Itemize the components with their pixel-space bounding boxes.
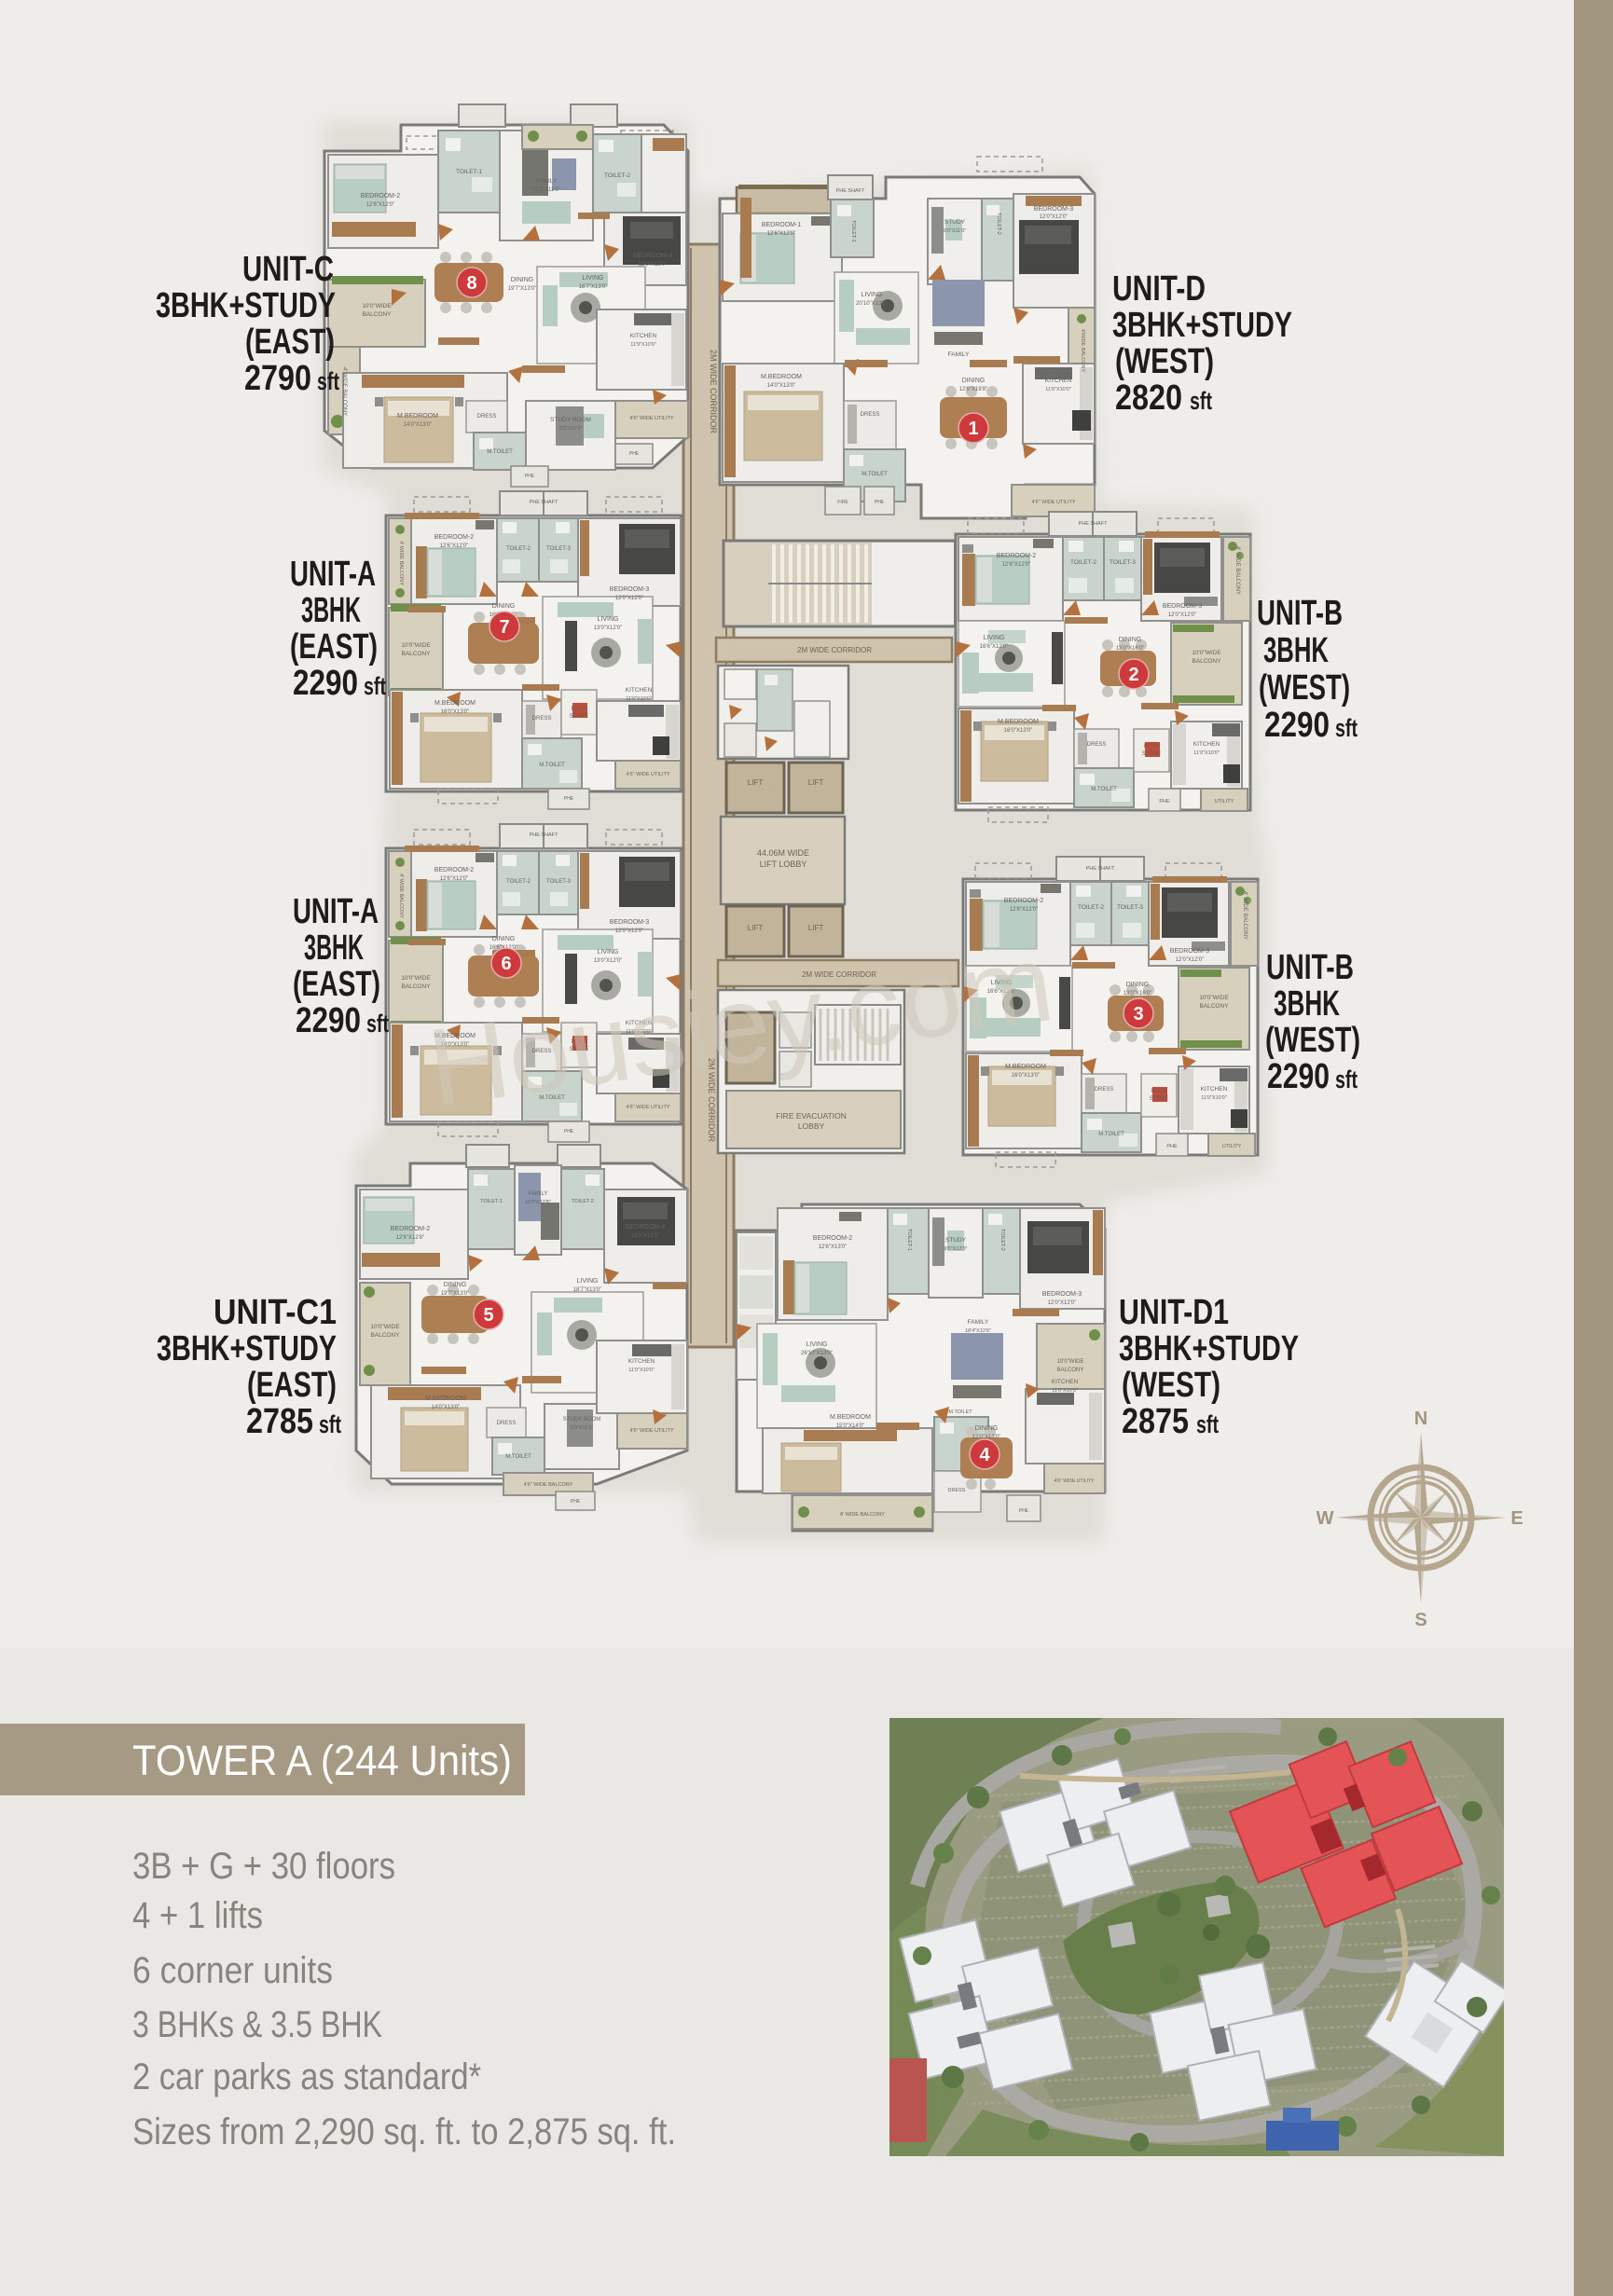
svg-text:1: 1 (968, 419, 978, 439)
svg-text:(EAST): (EAST) (293, 965, 380, 1004)
svg-text:3BHK+STUDY: 3BHK+STUDY (156, 286, 336, 325)
svg-text:LIFT: LIFT (748, 778, 764, 787)
svg-text:(EAST): (EAST) (290, 627, 378, 667)
svg-text:7: 7 (499, 617, 509, 638)
svg-text:2785: 2785 (246, 1402, 313, 1441)
svg-text:LIFT LOBBY: LIFT LOBBY (760, 859, 807, 869)
svg-text:4: 4 (979, 1445, 990, 1465)
svg-text:sft: sft (364, 672, 386, 700)
svg-text:UNIT-C: UNIT-C (242, 250, 334, 289)
svg-text:3BHK+STUDY: 3BHK+STUDY (1119, 1329, 1299, 1368)
svg-text:2790: 2790 (244, 359, 311, 398)
svg-text:2 car parks as standard*: 2 car parks as standard* (132, 2056, 481, 2097)
svg-text:LOBBY: LOBBY (798, 1121, 825, 1131)
svg-text:UNIT-B: UNIT-B (1257, 594, 1343, 633)
svg-text:6: 6 (501, 954, 511, 974)
svg-text:sft: sft (317, 367, 339, 395)
svg-text:2820: 2820 (1115, 378, 1182, 418)
svg-text:3BHK+STUDY: 3BHK+STUDY (1112, 306, 1292, 345)
svg-text:2290: 2290 (293, 664, 358, 703)
svg-text:LIFT: LIFT (808, 924, 824, 932)
svg-text:UNIT-B: UNIT-B (1266, 948, 1354, 987)
svg-text:Sizes from 2,290 sq. ft. to 2,: Sizes from 2,290 sq. ft. to 2,875 sq. ft… (132, 2111, 676, 2152)
svg-text:6 corner units: 6 corner units (132, 1950, 333, 1991)
svg-text:3BHK+STUDY: 3BHK+STUDY (157, 1329, 337, 1368)
svg-text:3BHK: 3BHK (1263, 631, 1329, 670)
svg-text:sft: sft (1335, 1066, 1358, 1093)
svg-text:S: S (1414, 1610, 1427, 1630)
svg-text:LIFT: LIFT (808, 778, 824, 787)
svg-text:E: E (1510, 1508, 1523, 1529)
svg-text:(WEST): (WEST) (1265, 1021, 1360, 1060)
svg-text:TOWER A (244 Units): TOWER A (244 Units) (132, 1737, 512, 1784)
svg-text:3 BHKs & 3.5 BHK: 3 BHKs & 3.5 BHK (132, 2004, 382, 2045)
svg-text:3BHK: 3BHK (301, 591, 361, 630)
svg-text:N: N (1414, 1409, 1427, 1429)
svg-text:44.06M WIDE: 44.06M WIDE (757, 848, 809, 858)
svg-text:sft: sft (366, 1010, 389, 1038)
svg-text:(WEST): (WEST) (1115, 342, 1214, 381)
svg-text:UNIT-A: UNIT-A (290, 555, 376, 594)
svg-text:2875: 2875 (1122, 1402, 1189, 1441)
svg-text:4 + 1 lifts: 4 + 1 lifts (132, 1895, 263, 1936)
svg-text:(WEST): (WEST) (1122, 1366, 1220, 1405)
svg-text:sft: sft (1190, 387, 1212, 415)
svg-text:LIFT: LIFT (748, 924, 764, 932)
svg-text:3BHK: 3BHK (1274, 984, 1340, 1024)
svg-text:2290: 2290 (296, 1001, 361, 1040)
svg-text:W: W (1317, 1508, 1334, 1529)
svg-text:2: 2 (1128, 665, 1138, 685)
svg-text:3: 3 (1133, 1004, 1143, 1024)
svg-text:8: 8 (466, 273, 476, 294)
svg-text:2M WIDE CORRIDOR: 2M WIDE CORRIDOR (797, 646, 872, 654)
svg-text:5: 5 (483, 1305, 493, 1326)
svg-text:FIRE EVACUATION: FIRE EVACUATION (776, 1111, 847, 1121)
svg-text:UNIT-C1: UNIT-C1 (214, 1293, 337, 1332)
svg-text:sft: sft (1335, 714, 1358, 742)
svg-text:UNIT-D: UNIT-D (1112, 269, 1206, 309)
svg-text:(WEST): (WEST) (1259, 668, 1350, 708)
svg-text:UNIT-D1: UNIT-D1 (1119, 1293, 1229, 1332)
svg-text:(EAST): (EAST) (247, 1366, 337, 1405)
svg-text:3BHK: 3BHK (304, 928, 364, 968)
svg-text:sft: sft (1196, 1410, 1219, 1438)
svg-text:UNIT-A: UNIT-A (293, 892, 379, 931)
svg-text:(EAST): (EAST) (245, 323, 335, 362)
svg-text:2290: 2290 (1267, 1057, 1330, 1096)
svg-text:2290: 2290 (1264, 706, 1330, 745)
svg-text:sft: sft (319, 1410, 341, 1438)
svg-text:3B + G + 30 floors: 3B + G + 30 floors (132, 1846, 395, 1887)
svg-text:2M WIDE CORRIDOR: 2M WIDE CORRIDOR (709, 350, 718, 434)
